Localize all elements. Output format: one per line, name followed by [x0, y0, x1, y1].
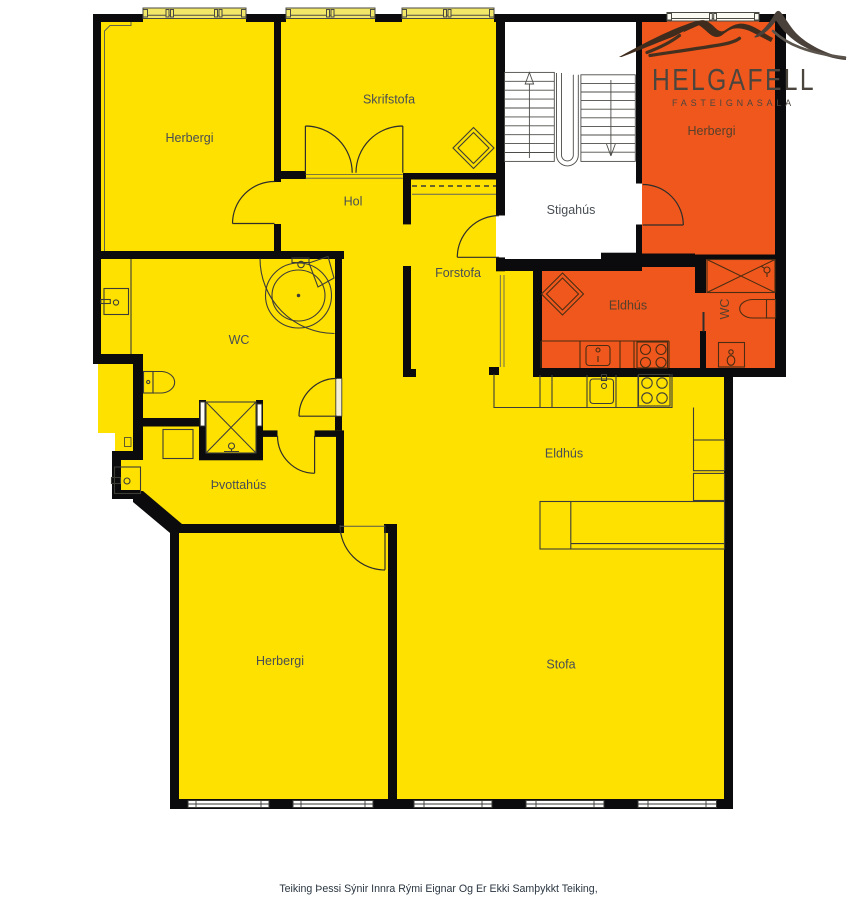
svg-text:Stigahús: Stigahús: [547, 203, 596, 217]
svg-text:Eldhús: Eldhús: [609, 299, 647, 313]
svg-text:Forstofa: Forstofa: [435, 266, 481, 280]
svg-text:Eldhús: Eldhús: [545, 447, 583, 461]
svg-text:HELGAFELL: HELGAFELL: [652, 62, 816, 97]
svg-text:WC: WC: [718, 299, 732, 320]
svg-text:WC: WC: [229, 333, 250, 347]
svg-text:FASTEIGNASALA: FASTEIGNASALA: [672, 98, 795, 109]
svg-text:Herbergi: Herbergi: [166, 131, 214, 145]
svg-text:Þvottahús: Þvottahús: [211, 478, 267, 492]
svg-text:Teiking Þessi Sýnir Innra Rými: Teiking Þessi Sýnir Innra Rými Eignar Og…: [279, 883, 597, 895]
svg-text:Herbergi: Herbergi: [688, 124, 736, 138]
svg-text:Hol: Hol: [344, 195, 363, 209]
svg-text:Skrifstofa: Skrifstofa: [363, 93, 415, 107]
svg-text:Stofa: Stofa: [546, 658, 575, 672]
svg-text:Herbergi: Herbergi: [256, 654, 304, 668]
